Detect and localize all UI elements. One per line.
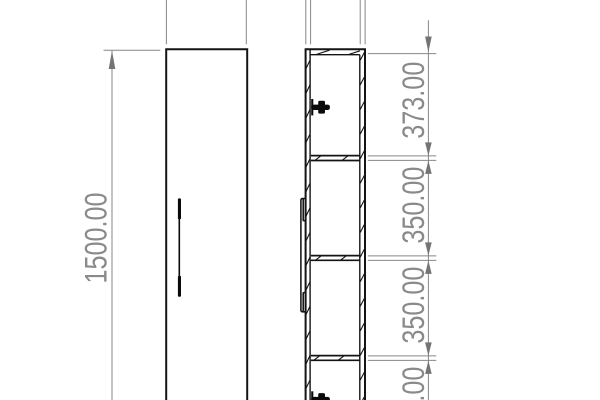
svg-text:350.00: 350.00: [396, 167, 431, 244]
svg-text:1500.00: 1500.00: [79, 192, 114, 283]
svg-text:350.00: 350.00: [396, 367, 431, 400]
svg-text:373.00: 373.00: [396, 62, 431, 139]
svg-text:350.00: 350.00: [396, 267, 431, 344]
